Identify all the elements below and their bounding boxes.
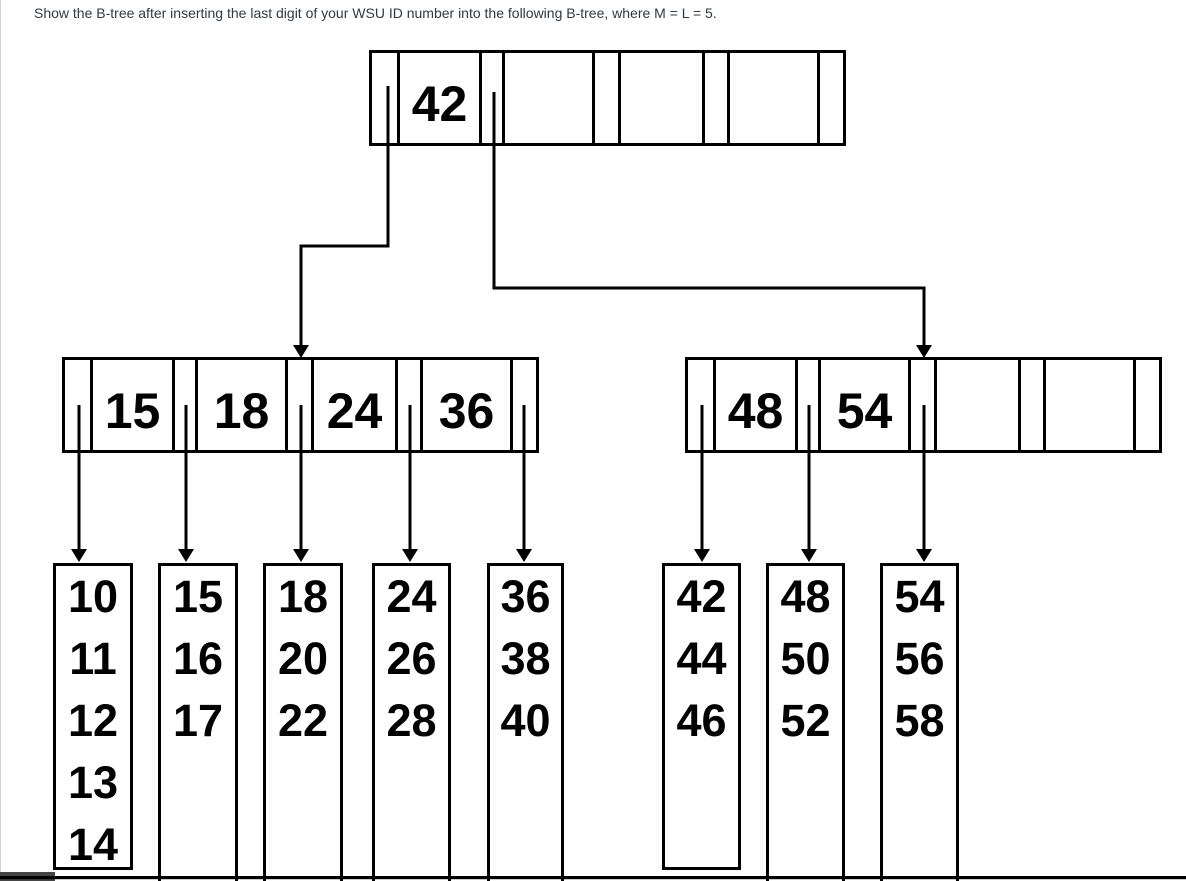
key-cell: 36 [423,360,513,450]
arrow-down-icon [293,549,309,562]
leaf-value [883,752,956,814]
key-cell [621,53,705,143]
key-cell: 54 [821,360,911,450]
leaf-value [266,752,340,814]
leaf-value: 52 [769,690,842,752]
key-cell: 42 [400,53,482,143]
pointer-cell [798,360,821,450]
leaf-value: 54 [883,566,956,628]
arrow-down-icon [516,549,532,562]
leaf-value: 36 [490,566,561,628]
pointer-cell [1136,360,1159,450]
pointer-cell [372,53,400,143]
btree-root-node: 42 [369,50,846,146]
leaf-value [490,752,561,814]
arrow-down-icon [402,549,418,562]
leaf-node-8: 54 56 58 [880,563,959,881]
leaf-value: 12 [56,690,130,752]
leaf-value: 22 [266,690,340,752]
key-cell [730,53,820,143]
btree-right-internal-node: 48 54 [685,357,1162,453]
leaf-value [375,752,448,814]
leaf-value [769,814,842,876]
pointer-cell [482,53,505,143]
leaf-value: 24 [375,566,448,628]
key-cell: 15 [93,360,175,450]
leaf-value [769,752,842,814]
bottom-left-bar [0,872,55,881]
leaf-value: 16 [161,628,235,690]
key-cell: 48 [716,360,798,450]
leaf-value [161,814,235,876]
key-cell: 24 [314,360,398,450]
leaf-value [490,814,561,876]
leaf-node-6: 42 44 46 [662,563,741,870]
leaf-value: 15 [161,566,235,628]
leaf-value: 46 [665,690,738,752]
leaf-value [266,814,340,876]
pointer-cell [595,53,621,143]
leaf-value: 28 [375,690,448,752]
arrow-down-icon [801,549,817,562]
leaf-value: 26 [375,628,448,690]
leaf-value: 17 [161,690,235,752]
key-cell: 18 [198,360,288,450]
pointer-cell [688,360,716,450]
btree-left-internal-node: 15 18 24 36 [62,357,539,453]
leaf-value: 58 [883,690,956,752]
pointer-cell [65,360,93,450]
key-cell [937,360,1021,450]
leaf-value: 38 [490,628,561,690]
leaf-node-1: 10 11 12 13 14 [53,563,133,870]
leaf-value [161,752,235,814]
leaf-value: 20 [266,628,340,690]
question-title: Show the B-tree after inserting the last… [34,4,717,22]
leaf-value: 56 [883,628,956,690]
pointer-cell [1021,360,1046,450]
leaf-node-2: 15 16 17 [158,563,238,881]
leaf-value [883,814,956,876]
leaf-value: 40 [490,690,561,752]
leaf-value [665,752,738,814]
pointer-cell [705,53,730,143]
pointer-cell [513,360,536,450]
arrow-down-icon [178,549,194,562]
leaf-value: 11 [56,628,130,690]
key-cell [505,53,595,143]
leaf-value: 50 [769,628,842,690]
leaf-value: 42 [665,566,738,628]
leaf-value: 14 [56,814,130,876]
pointer-cell [820,53,843,143]
arrow-down-icon [916,549,932,562]
leaf-node-3: 18 20 22 [263,563,343,881]
leaf-value: 10 [56,566,130,628]
leaf-value: 13 [56,752,130,814]
pointer-cell [175,360,198,450]
leaf-node-5: 36 38 40 [487,563,564,881]
leaf-value [375,814,448,876]
key-cell [1046,360,1136,450]
pointer-cell [911,360,937,450]
pointer-cell [288,360,314,450]
leaf-node-4: 24 26 28 [372,563,451,881]
leaf-value: 18 [266,566,340,628]
leaf-value [665,814,738,876]
pointer-cell [398,360,423,450]
arrow-down-icon [694,549,710,562]
arrow-down-icon [71,549,87,562]
leaf-value: 44 [665,628,738,690]
page-left-border [0,0,1,881]
leaf-value: 48 [769,566,842,628]
leaf-node-7: 48 50 52 [766,563,845,881]
btree-question-page: Show the B-tree after inserting the last… [0,0,1186,881]
